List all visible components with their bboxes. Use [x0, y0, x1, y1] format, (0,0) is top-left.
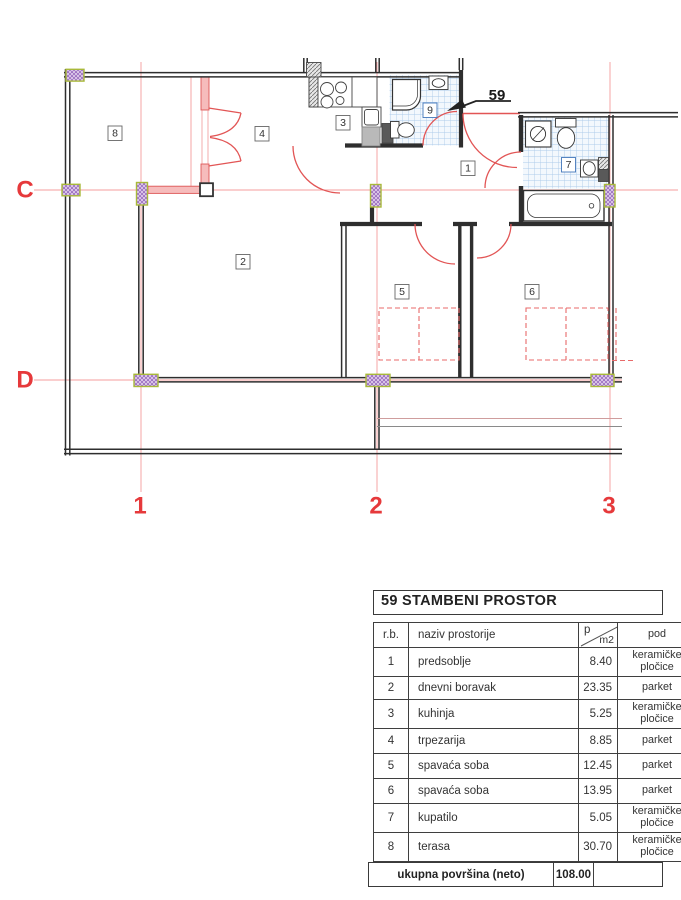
wall-top	[64, 73, 462, 77]
table-row: 4 trpezarija 8.85 parket	[374, 729, 681, 754]
kitchen-door-arc	[293, 146, 340, 193]
table-row: 3 kuhinja 5.25 keramičke pločice	[374, 700, 681, 729]
cell-naziv: terasa	[409, 833, 579, 862]
cell-naziv: kuhinja	[409, 700, 579, 729]
toilet-tank	[556, 119, 577, 128]
cell-p: 8.85	[579, 729, 618, 754]
cell-p: 12.45	[579, 754, 618, 779]
column-marker	[605, 185, 616, 208]
room-number: 7	[566, 159, 572, 171]
room-label-8: 8	[108, 126, 122, 141]
table-title: 59 STAMBENI PROSTOR	[373, 590, 663, 615]
table-row: 8 terasa 30.70 keramičke pločice	[374, 833, 681, 862]
room-number: 9	[427, 104, 433, 116]
total-value: 108.00	[554, 863, 594, 886]
col-header-pod: pod	[618, 623, 681, 648]
red-wall-horizontal-C	[148, 186, 200, 193]
stove-burner	[321, 83, 334, 96]
room5-door-arc	[415, 224, 455, 264]
stove-burner	[336, 82, 347, 93]
beds	[379, 308, 636, 361]
room-number: 4	[259, 128, 265, 140]
table-row: 5 spavaća soba 12.45 parket	[374, 754, 681, 779]
cell-pod: keramičke pločice	[618, 700, 681, 729]
floor-plan: 8 4 3 9 1 7 2 5	[0, 0, 681, 560]
cell-rb: 4	[374, 729, 409, 754]
cell-pod: keramičke pločice	[618, 833, 681, 862]
wash-basin-bowl	[432, 79, 445, 88]
shower-tray	[393, 80, 421, 111]
table-header-row: r.b. naziv prostorije p m2 pod	[374, 623, 681, 648]
wall-left	[66, 69, 70, 456]
bed-room6	[526, 308, 608, 360]
col-header-p-m2: p m2	[579, 623, 618, 648]
double-door-lower-leaf	[209, 138, 242, 167]
column-marker	[66, 69, 84, 81]
railings	[377, 419, 622, 427]
cell-p: 23.35	[579, 677, 618, 700]
room-number: 2	[240, 256, 246, 268]
party-wall-stub	[376, 58, 379, 73]
shaft-bath7-solid	[599, 170, 609, 182]
cell-rb: 3	[374, 700, 409, 729]
room-number: 1	[465, 162, 471, 174]
double-door-upper-leaf	[209, 108, 242, 137]
total-label: ukupna površina (neto)	[369, 863, 554, 886]
room-label-9: 9	[423, 103, 437, 118]
cell-naziv: spavaća soba	[409, 754, 579, 779]
room-label-4: 4	[255, 127, 269, 142]
wall-room2-right	[342, 222, 346, 378]
column-marker	[137, 183, 148, 206]
grid-label-1: 1	[133, 493, 146, 520]
col-header-m2: m2	[599, 634, 614, 646]
total-row: ukupna površina (neto) 108.00	[368, 862, 663, 887]
cell-p: 30.70	[579, 833, 618, 862]
cell-rb: 6	[374, 779, 409, 804]
cell-naziv: predsoblje	[409, 648, 579, 677]
cell-naziv: trpezarija	[409, 729, 579, 754]
wall-junction-box	[200, 183, 213, 196]
cell-p: 8.40	[579, 648, 618, 677]
cell-rb: 5	[374, 754, 409, 779]
grid-label-3: 3	[602, 493, 615, 520]
cell-rb: 8	[374, 833, 409, 862]
room-number: 3	[340, 117, 346, 129]
col-header-p: p	[584, 624, 590, 636]
toilet-bowl	[557, 128, 574, 149]
cell-p: 5.05	[579, 804, 618, 833]
wall-bottom	[64, 449, 622, 453]
wall-right	[609, 115, 613, 378]
room-area-table: r.b. naziv prostorije p m2 pod 1 predsob…	[373, 622, 681, 862]
room-number: 5	[399, 286, 405, 298]
cell-p: 5.25	[579, 700, 618, 729]
kitchen-fixtures	[309, 77, 381, 146]
wall-top-right	[518, 113, 678, 117]
page: { "plan": { "unit_label": "59", "grid": …	[0, 0, 681, 900]
entrance-door-arc	[463, 114, 517, 168]
room-label-6: 6	[525, 285, 539, 300]
total-empty-cell	[594, 863, 662, 886]
grid-label-C: C	[16, 177, 33, 204]
table-row: 7 kupatilo 5.05 keramičke pločice	[374, 804, 681, 833]
grid-label-2: 2	[369, 493, 382, 520]
cell-naziv: spavaća soba	[409, 779, 579, 804]
room-label-5: 5	[395, 285, 409, 300]
table-row: 6 spavaća soba 13.95 parket	[374, 779, 681, 804]
red-wall-vertical-lower	[201, 164, 209, 183]
table-row: 1 predsoblje 8.40 keramičke pločice	[374, 648, 681, 677]
party-wall-stub	[459, 58, 462, 70]
room-number: 6	[529, 286, 535, 298]
col-header-rb: r.b.	[374, 623, 409, 648]
cell-pod: parket	[618, 729, 681, 754]
kitchen-cabinet	[362, 127, 380, 146]
shaft-bath7-hatch	[599, 158, 609, 170]
area-table-sheet: 59 STAMBENI PROSTOR r.b. naziv prostorij…	[373, 590, 663, 887]
cell-p: 13.95	[579, 779, 618, 804]
cell-pod: keramičke pločice	[618, 804, 681, 833]
table-row: 2 dnevni boravak 23.35 parket	[374, 677, 681, 700]
room-label-7: 7	[562, 158, 576, 173]
column-marker	[134, 374, 158, 386]
stove-burner	[321, 96, 333, 108]
vent-shaft-top	[307, 63, 322, 78]
room-number: 8	[112, 127, 118, 139]
cell-pod: parket	[618, 779, 681, 804]
red-wall-vertical-upper	[201, 77, 209, 110]
cell-naziv: kupatilo	[409, 804, 579, 833]
cell-rb: 1	[374, 648, 409, 677]
wash-basin-bowl	[583, 162, 595, 176]
kitchen-sink-basin	[365, 110, 379, 126]
cell-pod: keramičke pločice	[618, 648, 681, 677]
column-marker	[371, 185, 382, 208]
col-header-naziv: naziv prostorije	[409, 623, 579, 648]
column-marker	[62, 184, 80, 196]
toilet-bowl	[398, 123, 415, 137]
bathtub-drain	[589, 204, 594, 209]
cell-naziv: dnevni boravak	[409, 677, 579, 700]
kitchen-hatch-strip	[309, 77, 318, 107]
cell-rb: 7	[374, 804, 409, 833]
bath7-door-arc	[485, 152, 521, 188]
room-label-1: 1	[461, 161, 475, 176]
cell-pod: parket	[618, 677, 681, 700]
room-label-3: 3	[336, 116, 350, 131]
column-marker	[366, 374, 390, 386]
cell-rb: 2	[374, 677, 409, 700]
room-label-2: 2	[236, 255, 250, 270]
cell-pod: parket	[618, 754, 681, 779]
stove-burner	[336, 97, 344, 105]
room6-door-arc	[477, 224, 511, 258]
grid-label-D: D	[16, 367, 33, 394]
column-marker	[591, 374, 614, 386]
